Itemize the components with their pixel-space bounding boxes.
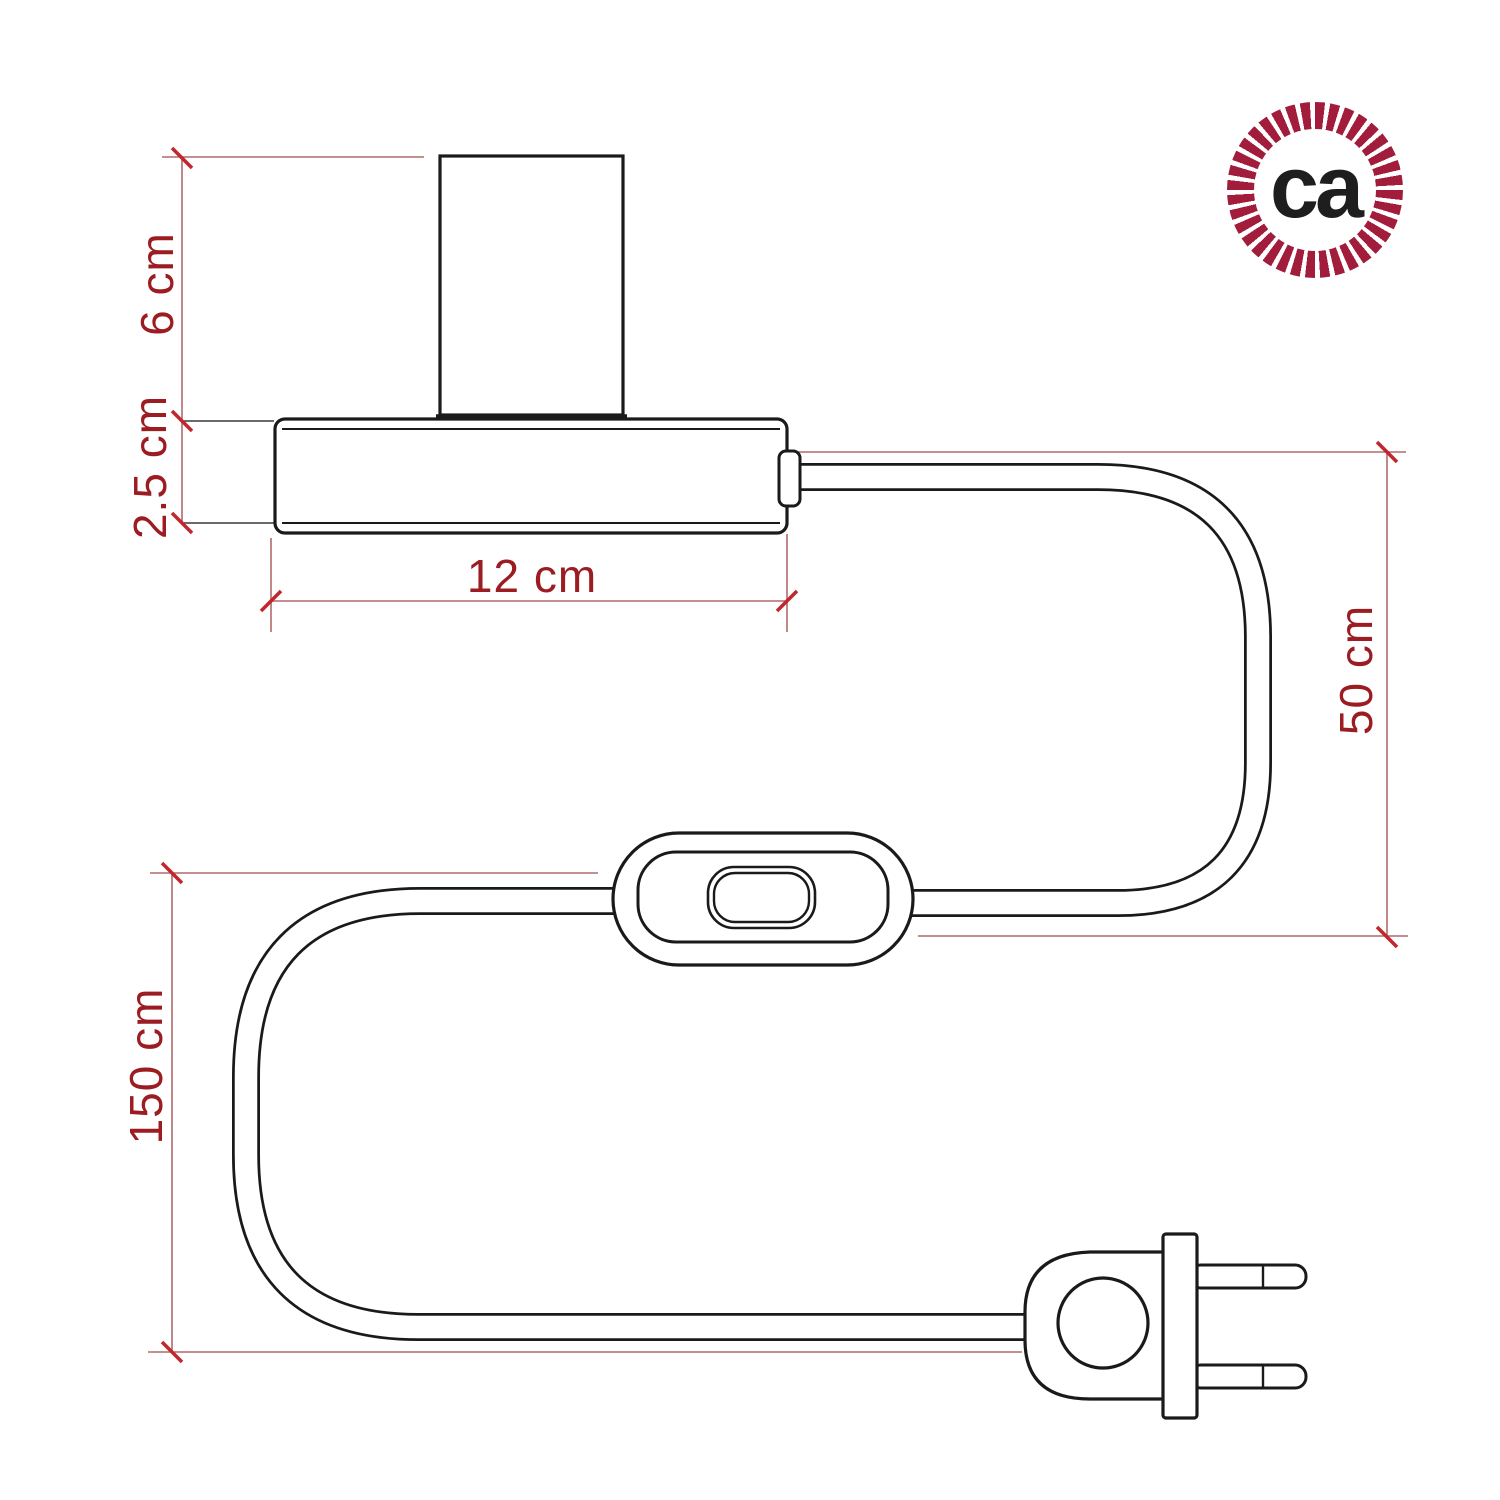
dimension-label-base-width: 12 cm [467, 549, 597, 603]
cable-connector-nub [779, 451, 800, 506]
brand-logo-monogram: ca [1270, 143, 1360, 237]
plug-faceplate [1163, 1234, 1197, 1418]
lamp-base-plate [275, 419, 787, 533]
cable-switch-to-plug [246, 901, 1045, 1327]
plug-prong-top [1190, 1265, 1306, 1288]
plug-prong-bottom [1190, 1365, 1306, 1388]
inline-switch [613, 833, 913, 965]
dimension-extension-dark [182, 421, 276, 523]
dimension-ticks [162, 148, 1397, 1362]
cable-switch-to-plug-core [246, 901, 1045, 1327]
lamp-holder [275, 156, 800, 533]
brand-logo-inner-circle: ca [1254, 129, 1376, 251]
diagram-canvas: 6 cm 2.5 cm 12 cm 50 cm 150 cm ca [0, 0, 1500, 1500]
dimension-label-cable-total: 150 cm [119, 988, 173, 1145]
power-plug [1025, 1234, 1306, 1418]
lamp-socket-cylinder [440, 156, 623, 415]
dimension-label-cable-upper: 50 cm [1329, 605, 1383, 735]
brand-logo-rope-ring: ca [1227, 102, 1403, 278]
dimension-lines [148, 157, 1408, 1352]
dimension-label-socket-height: 6 cm [130, 232, 184, 336]
dimension-label-base-height: 2.5 cm [123, 395, 177, 539]
plug-screw-circle [1058, 1278, 1148, 1368]
